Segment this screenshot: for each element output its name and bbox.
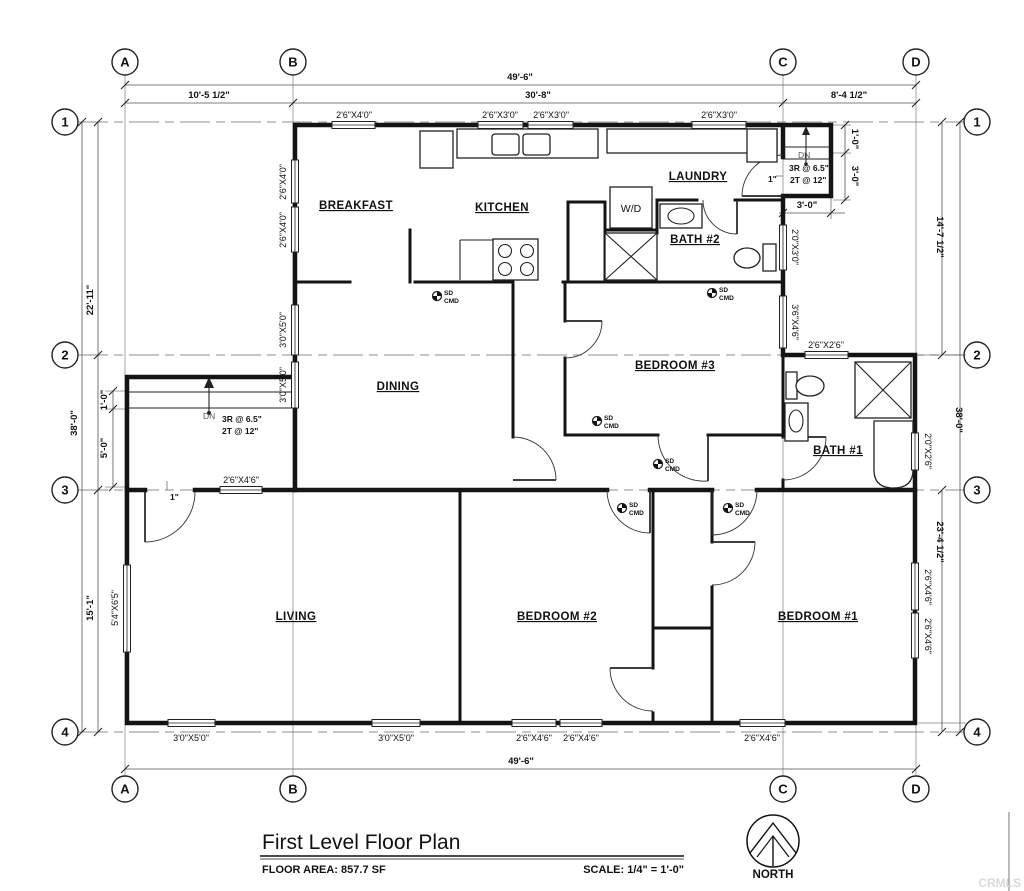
window-bath1-north: 2'6"X2'6" <box>805 340 848 359</box>
grid-bubble-row-1-right-label: 1 <box>973 115 980 130</box>
grid-bubble-col-a-bottom-label: A <box>120 782 130 797</box>
washer-dryer-label: W/D <box>621 203 642 215</box>
dim-right-3-4: 23'-4 1/2" <box>934 521 945 563</box>
svg-text:2'6"X4'6": 2'6"X4'6" <box>516 733 552 743</box>
svg-text:CMD: CMD <box>719 295 734 302</box>
bath2-toilet-tank <box>763 244 776 271</box>
north-label: NORTH <box>753 869 794 881</box>
grid-bubble-row-2-right-label: 2 <box>973 348 980 363</box>
dim-overall-height-left: 38'-0" <box>69 410 80 436</box>
vestibule-stair-riser-note: 3R @ 6.5" <box>789 163 829 173</box>
vestibule-stair-tread-note: 2T @ 12" <box>790 175 826 185</box>
svg-text:2'0"X2'6": 2'0"X2'6" <box>923 433 933 469</box>
svg-text:3'0"X5'0": 3'0"X5'0" <box>378 733 414 743</box>
dim-stair-three-foot-right: 3'-0" <box>849 166 860 187</box>
grid-bubble-row-3-right-label: 3 <box>973 483 980 498</box>
room-label-living: LIVING <box>276 611 317 623</box>
svg-text:SD: SD <box>604 415 613 422</box>
window-breakfast-top: 2'6"X4'0" <box>332 110 375 129</box>
dim-overall-width-top: 49'-6" <box>507 72 533 83</box>
svg-text:2'6"X4'0": 2'6"X4'0" <box>278 164 288 200</box>
svg-text:2'0"X3'0": 2'0"X3'0" <box>790 229 800 265</box>
bath1-toilet <box>796 376 824 396</box>
svg-text:2'6"X4'0": 2'6"X4'0" <box>278 212 288 248</box>
svg-text:2'6"X4'6": 2'6"X4'6" <box>563 733 599 743</box>
dim-left-3-4: 15'-1" <box>85 595 96 621</box>
dim-one-inch-laundry: 1" <box>768 174 777 184</box>
svg-text:2'6"X4'6": 2'6"X4'6" <box>923 618 933 654</box>
dim-overall-width-bottom: 49'-6" <box>508 756 534 767</box>
room-label-bath2: BATH #2 <box>670 234 720 246</box>
svg-text:SD: SD <box>629 502 638 509</box>
grid-bubble-col-d-top-label: D <box>911 55 920 70</box>
dim-stair-one-foot-left: 1'-0" <box>99 390 110 411</box>
dim-c-d: 8'-4 1/2" <box>831 90 867 101</box>
floor-plan-drawing: A B C D A B C D 1 2 3 4 1 2 3 4 <box>0 0 1024 891</box>
floor-area-note: FLOOR AREA: 857.7 SF <box>262 864 386 876</box>
scale-note: SCALE: 1/4" = 1'-0" <box>583 864 684 876</box>
svg-text:CMD: CMD <box>629 510 644 517</box>
svg-text:CMD: CMD <box>735 510 750 517</box>
svg-text:3'0"X5'0": 3'0"X5'0" <box>278 367 288 403</box>
svg-text:3'0"X5'0": 3'0"X5'0" <box>278 312 288 348</box>
svg-text:SD: SD <box>719 287 728 294</box>
porch-stair-riser-note: 3R @ 6.5" <box>222 414 262 424</box>
bath1-tub <box>874 421 913 488</box>
svg-text:2'6"X4'6": 2'6"X4'6" <box>223 475 259 485</box>
grid-bubble-row-4-left-label: 4 <box>61 725 69 740</box>
window-living-north: 2'6"X4'6" <box>220 475 262 494</box>
svg-text:2'6"X2'6": 2'6"X2'6" <box>808 340 844 350</box>
svg-text:SD: SD <box>665 458 674 465</box>
room-label-bedroom2: BEDROOM #2 <box>517 611 597 623</box>
room-label-dining: DINING <box>377 381 420 393</box>
grid-bubble-col-a-top-label: A <box>120 55 130 70</box>
dim-b-c: 30'-8" <box>525 90 551 101</box>
laundry-cabinet <box>747 129 777 162</box>
dim-left-1-2: 22'-11" <box>85 285 96 316</box>
room-label-bedroom3: BEDROOM #3 <box>635 360 715 372</box>
svg-text:3'6"X4'6": 3'6"X4'6" <box>790 304 800 340</box>
svg-text:2'6"X3'0": 2'6"X3'0" <box>533 110 569 120</box>
svg-text:3'0"X5'0": 3'0"X5'0" <box>173 733 209 743</box>
vestibule-stair-down-label: DN <box>798 150 810 160</box>
dim-right-1-2: 14'-7 1/2" <box>934 216 945 258</box>
grid-bubble-col-c-top-label: C <box>778 55 788 70</box>
bath2-toilet <box>734 248 760 268</box>
svg-text:2'6"X4'0": 2'6"X4'0" <box>336 110 372 120</box>
grid-bubble-row-4-right-label: 4 <box>973 725 981 740</box>
dim-stair-width: 3'-0" <box>797 200 818 211</box>
window-kitchen-top-2: 2'6"X3'0" <box>528 110 573 129</box>
floor-plan-sheet: A B C D A B C D 1 2 3 4 1 2 3 4 <box>0 0 1024 891</box>
window-kitchen-top-1: 2'6"X3'0" <box>478 110 523 129</box>
kitchen-sink-left <box>492 134 519 155</box>
dim-one-inch-entry: 1" <box>170 492 179 502</box>
grid-bubble-row-3-left-label: 3 <box>61 483 68 498</box>
room-label-bedroom1: BEDROOM #1 <box>778 611 858 623</box>
svg-text:CMD: CMD <box>444 298 459 305</box>
grid-bubble-col-d-bottom-label: D <box>911 782 920 797</box>
sheet-title: First Level Floor Plan <box>262 831 460 854</box>
svg-text:CMD: CMD <box>665 466 680 473</box>
svg-text:2'6"X4'6": 2'6"X4'6" <box>744 733 780 743</box>
svg-text:2'6"X3'0": 2'6"X3'0" <box>701 110 737 120</box>
grid-bubble-col-c-bottom-label: C <box>778 782 788 797</box>
kitchen-sink-right <box>523 134 550 155</box>
room-label-breakfast: BREAKFAST <box>319 200 393 212</box>
grid-bubble-row-1-left-label: 1 <box>61 115 68 130</box>
dim-a-b: 10'-5 1/2" <box>188 90 230 101</box>
grid-bubble-col-b-top-label: B <box>288 55 297 70</box>
room-label-kitchen: KITCHEN <box>475 202 529 214</box>
bath1-toilet-tank <box>786 372 797 399</box>
svg-text:2'6"X3'0": 2'6"X3'0" <box>482 110 518 120</box>
svg-text:2'6"X4'6": 2'6"X4'6" <box>923 569 933 605</box>
watermark: CRMLS <box>978 876 1021 890</box>
svg-text:SD: SD <box>444 290 453 297</box>
room-label-bath1: BATH #1 <box>813 445 863 457</box>
porch-stair-down-label: DN <box>203 411 215 421</box>
svg-text:CMD: CMD <box>604 423 619 430</box>
porch-stair-tread-note: 2T @ 12" <box>222 426 258 436</box>
dim-overall-height-right: 38'-0" <box>953 407 964 433</box>
grid-bubble-col-b-bottom-label: B <box>288 782 297 797</box>
bath1-vanity <box>785 403 808 441</box>
svg-text:SD: SD <box>735 502 744 509</box>
dim-stair-five-foot-left: 5'-0" <box>99 438 110 459</box>
grid-bubble-row-2-left-label: 2 <box>61 348 68 363</box>
svg-text:5'4"X6'5": 5'4"X6'5" <box>110 590 120 626</box>
refrigerator <box>420 131 453 168</box>
dim-stair-one-foot-right: 1'-0" <box>849 129 860 150</box>
room-label-laundry: LAUNDRY <box>669 171 728 183</box>
